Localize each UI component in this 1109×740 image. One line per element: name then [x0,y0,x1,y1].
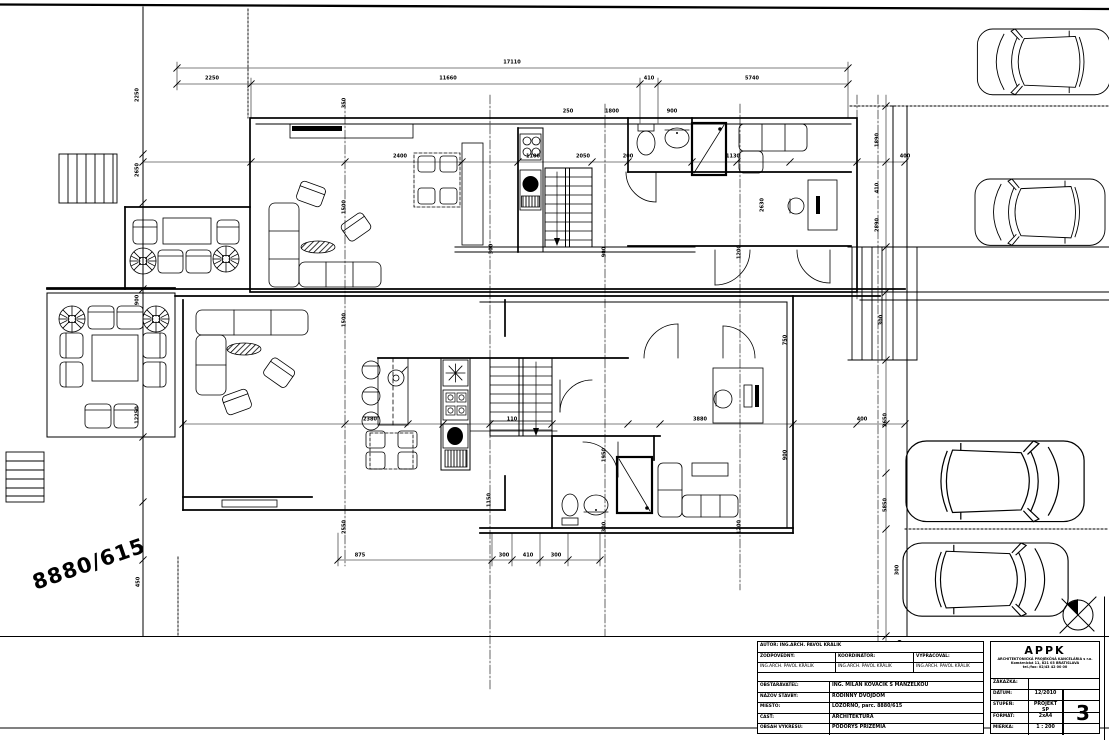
meta-label: FORMÁT: [991,713,1029,723]
field-label: NÁZOV STAVBY: [758,693,830,703]
sheet-number: 3 [1076,701,1090,725]
tree-icon [59,306,85,332]
floor-plan-drawing [0,0,1109,740]
meta-value: 2xA4 [1029,713,1063,723]
role-label: ZODPOVEDNÝ: [758,653,836,662]
role-name: ING.ARCH. PAVOL KRÁLIK [836,663,914,672]
office-address-3: tel./fax: 02/43 42 00 00 [991,665,1099,669]
title-block-office: APPK ARCHITEKTONICKÁ PROJEKČNÁ KANCELÁRI… [990,641,1100,734]
field-value: LOZORNO, parc. 8880/615 [830,703,983,713]
role-name: ING.ARCH. PAVOL KRÁLIK [914,663,983,672]
meta-label: STUPEŇ: [991,701,1029,711]
meta-label: ZÁKAZKA: [991,679,1029,689]
meta-label: DÁTUM: [991,690,1029,700]
terrace-upper [133,218,239,273]
field-label: ČASŤ: [758,714,830,724]
field-value: PÔDORYS PRÍZEMIA [830,724,983,735]
meta-value: 1 : 200 [1029,724,1063,735]
field-value: ARCHITEKTÚRA [830,714,983,724]
role-name: ING.ARCH. PAVOL KRÁLIK [758,663,836,672]
floor-plan-sheet: 1711022501166041057403502501800900240011… [0,0,1109,740]
meta-value: 12/2010 [1029,690,1063,700]
parked-cars [903,29,1109,616]
title-block-project: AUTOR: ING.ARCH. PAVOL KRÁLIK ZODPOVEDNÝ… [757,641,984,734]
author-row: AUTOR: ING.ARCH. PAVOL KRÁLIK [758,642,983,652]
north-symbol-icon [1060,597,1096,633]
unit-a-furniture [269,124,837,287]
field-value: ING. MILAN KOVÁČIK S MANŽELKOU [830,682,983,692]
meta-label: MIERKA: [991,724,1029,735]
role-label: VYPRACOVAL: [914,653,983,662]
unit-a-fixtures [637,123,726,175]
meta-value: PROJEKT SP [1029,701,1063,711]
unit-a-walls [47,118,905,296]
field-label: OBSAH VÝKRESU: [758,724,830,735]
car-3 [906,441,1084,522]
role-label: KOORDINÁTOR: [836,653,914,662]
field-label: OBSTARÁVATEĽ: [758,682,830,692]
field-label: MIESTO: [758,703,830,713]
unit-b-walls [183,296,793,533]
car-4 [903,543,1068,616]
office-logo: APPK [991,645,1099,657]
meta-value [1029,679,1099,689]
tree-icon [213,246,239,272]
car-1 [977,29,1109,95]
tree-icon [143,306,169,332]
field-value: RODINNÝ DVOJDOM [830,693,983,703]
unit-b-fixtures [562,457,652,525]
car-2 [975,179,1105,245]
